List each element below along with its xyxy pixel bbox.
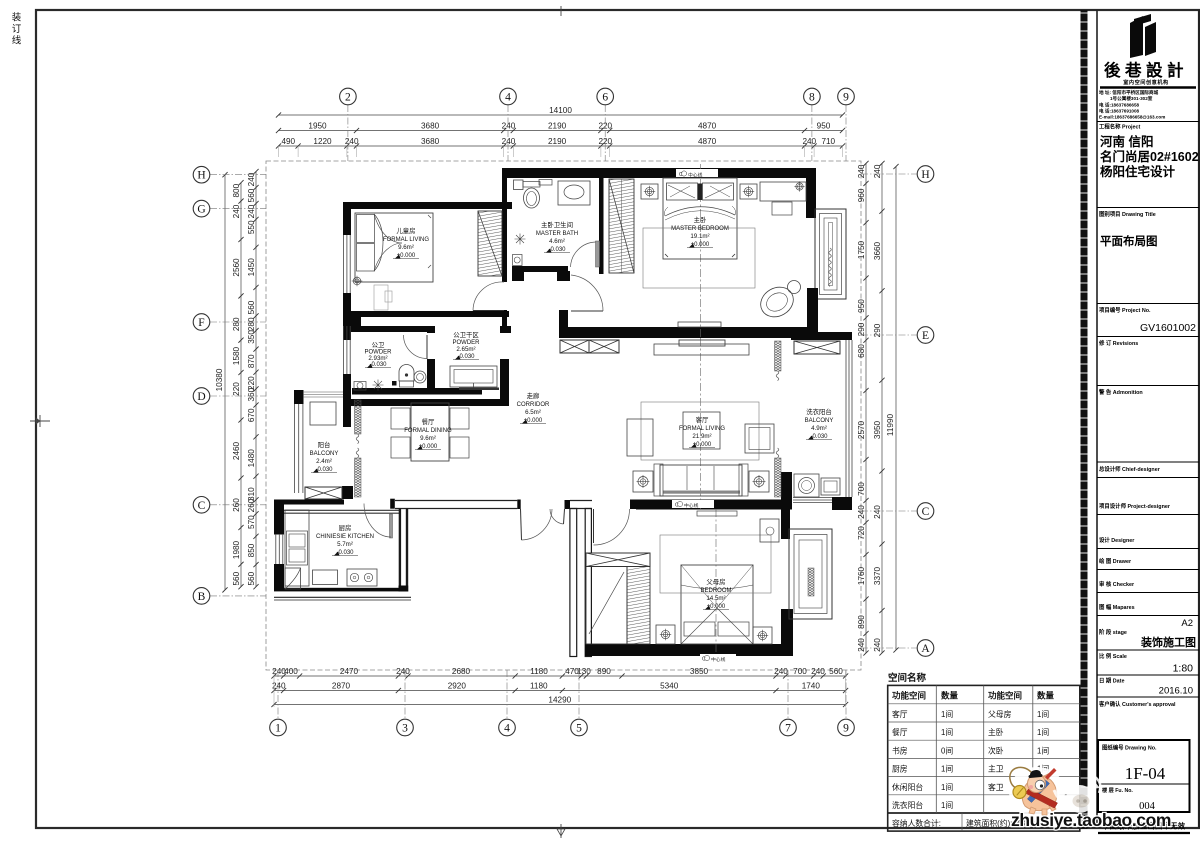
svg-text:阶 段 stage: 阶 段 stage (1099, 628, 1127, 636)
svg-text:2016.10: 2016.10 (1159, 686, 1193, 697)
svg-text:1间: 1间 (941, 801, 953, 810)
svg-text:2680: 2680 (452, 667, 471, 676)
svg-text:960: 960 (857, 188, 866, 202)
svg-text:G: G (197, 204, 205, 216)
svg-text:公卫干区: 公卫干区 (453, 331, 479, 339)
svg-text:书房: 书房 (892, 745, 908, 755)
svg-text:950: 950 (817, 122, 831, 131)
svg-text:220: 220 (598, 122, 612, 131)
svg-text:A2: A2 (1181, 618, 1193, 629)
svg-text:19.1m²: 19.1m² (690, 233, 709, 240)
svg-text:MASTER BATH: MASTER BATH (536, 231, 578, 237)
svg-text:6: 6 (602, 92, 608, 104)
svg-text:1740: 1740 (802, 682, 821, 691)
svg-text:2570: 2570 (857, 420, 866, 439)
svg-text:490: 490 (281, 137, 295, 146)
svg-text:3950: 3950 (873, 420, 882, 439)
svg-text:项目编号 Project No.: 项目编号 Project No. (1099, 306, 1151, 314)
svg-text:项目设计师 Project-designer: 项目设计师 Project-designer (1099, 502, 1171, 510)
svg-text:次卧: 次卧 (988, 745, 1004, 755)
svg-text:4870: 4870 (698, 137, 717, 146)
svg-text:2.65m²: 2.65m² (456, 346, 475, 353)
svg-text:240: 240 (247, 204, 256, 218)
svg-text:700: 700 (857, 482, 866, 496)
svg-text:日 期 Date: 日 期 Date (1099, 677, 1124, 685)
svg-text:1:80: 1:80 (1173, 663, 1194, 675)
svg-text:14100: 14100 (549, 106, 572, 115)
svg-text:後巷設計: 後巷設計 (1104, 60, 1188, 80)
svg-text:850: 850 (247, 543, 256, 557)
svg-text:B: B (198, 591, 206, 603)
svg-text:室内空间创意机构: 室内空间创意机构 (1123, 78, 1169, 86)
svg-text:2190: 2190 (548, 122, 567, 131)
svg-text:A: A (921, 643, 930, 655)
svg-text:9: 9 (843, 723, 849, 735)
svg-text:CHINIESIE KITCHEN: CHINIESIE KITCHEN (316, 534, 374, 540)
svg-text:680: 680 (857, 344, 866, 358)
svg-text:电 话:18637691008: 电 话:18637691008 (1099, 108, 1140, 115)
svg-text:客厅: 客厅 (696, 415, 709, 424)
svg-text:800: 800 (232, 183, 241, 197)
svg-text:设计 Designer: 设计 Designer (1099, 536, 1135, 544)
svg-text:图别项目 Drawing Title: 图别项目 Drawing Title (1099, 210, 1156, 218)
svg-text:560: 560 (829, 667, 843, 676)
svg-text:餐厅: 餐厅 (892, 728, 908, 737)
svg-text:修 订 Revisions: 修 订 Revisions (1098, 339, 1138, 347)
svg-text:平面布局图: 平面布局图 (1100, 234, 1158, 248)
svg-text:走廊: 走廊 (527, 391, 540, 400)
svg-text:图纸编号 Drawing No.: 图纸编号 Drawing No. (1102, 744, 1157, 752)
svg-text:240: 240 (802, 137, 816, 146)
svg-text:240: 240 (873, 638, 882, 652)
svg-text:1间: 1间 (1037, 710, 1049, 719)
svg-text:1F-04: 1F-04 (1125, 764, 1166, 783)
svg-text:D: D (197, 391, 205, 403)
svg-text:720: 720 (857, 526, 866, 540)
svg-text:GV1601002: GV1601002 (1140, 322, 1196, 334)
svg-text:儿童房: 儿童房 (396, 226, 415, 235)
svg-text:14.5m²: 14.5m² (706, 595, 725, 602)
svg-text:中心线: 中心线 (684, 502, 699, 509)
svg-text:710: 710 (821, 137, 835, 146)
svg-text:11990: 11990 (886, 413, 895, 436)
svg-text:1180: 1180 (530, 667, 548, 676)
svg-text:容纳人数合计:: 容纳人数合计: (892, 818, 941, 828)
svg-text:950: 950 (857, 299, 866, 313)
svg-text:1980: 1980 (232, 540, 241, 559)
svg-text:工程名称 Project: 工程名称 Project (1099, 123, 1141, 131)
svg-text:2470: 2470 (340, 667, 359, 676)
svg-text:客卫: 客卫 (988, 782, 1004, 792)
svg-text:240: 240 (857, 164, 866, 178)
svg-text:1间: 1间 (941, 710, 953, 719)
svg-text:240: 240 (857, 638, 866, 652)
svg-text:560: 560 (247, 571, 256, 585)
svg-text:570: 570 (247, 515, 256, 529)
svg-text:240: 240 (873, 164, 882, 178)
svg-text:中心线: 中心线 (688, 172, 703, 179)
svg-text:C: C (198, 500, 206, 512)
svg-text:5.7m²: 5.7m² (337, 541, 353, 548)
svg-text:3: 3 (402, 723, 408, 735)
svg-text:1号公寓楼301-302室: 1号公寓楼301-302室 (1110, 95, 1153, 102)
svg-text:9.6m²: 9.6m² (420, 435, 436, 442)
svg-text:功能空间: 功能空间 (892, 691, 926, 701)
svg-text:地 址: 信阳市平桥区国际商城: 地 址: 信阳市平桥区国际商城 (1099, 89, 1159, 96)
svg-text:6.5m²: 6.5m² (525, 409, 541, 416)
svg-text:240: 240 (873, 505, 882, 519)
svg-text:客厅: 客厅 (892, 709, 908, 719)
svg-text:数量: 数量 (1037, 691, 1055, 701)
svg-text:240: 240 (502, 122, 516, 131)
svg-text:220: 220 (232, 382, 241, 396)
svg-text:560: 560 (247, 188, 256, 202)
svg-text:2460: 2460 (232, 441, 241, 460)
svg-text:主卧: 主卧 (694, 215, 707, 224)
svg-text:9: 9 (843, 92, 849, 104)
svg-text:F: F (198, 317, 204, 329)
svg-text:360: 360 (247, 387, 256, 401)
svg-text:空间名称: 空间名称 (888, 672, 927, 684)
svg-text:4.9m²: 4.9m² (811, 425, 827, 432)
svg-text:1760: 1760 (857, 566, 866, 585)
svg-text:C: C (675, 503, 679, 509)
svg-text:9.6m²: 9.6m² (398, 244, 414, 251)
svg-text:主卫: 主卫 (988, 764, 1004, 774)
svg-text:河南 信阳: 河南 信阳 (1100, 134, 1153, 149)
svg-text:4: 4 (505, 92, 511, 104)
svg-text:890: 890 (597, 667, 611, 676)
svg-text:240: 240 (502, 137, 516, 146)
svg-text:楼 层 Fu. No.: 楼 层 Fu. No. (1102, 786, 1133, 794)
svg-text:3660: 3660 (873, 241, 882, 260)
svg-text:560: 560 (232, 571, 241, 585)
svg-text:2.93m²: 2.93m² (368, 355, 387, 362)
svg-text:5340: 5340 (660, 682, 679, 691)
svg-text:240: 240 (247, 172, 256, 186)
svg-text:中心线: 中心线 (711, 656, 726, 663)
svg-text:8: 8 (809, 92, 815, 104)
svg-text:FORMAL DINING: FORMAL DINING (404, 428, 452, 434)
svg-text:阳台: 阳台 (318, 440, 331, 449)
svg-text:绘 图 Drawer: 绘 图 Drawer (1099, 557, 1132, 565)
svg-text:zhusiye.taobao.com: zhusiye.taobao.com (1011, 810, 1171, 830)
svg-text:1间: 1间 (1037, 728, 1049, 737)
svg-text:240: 240 (774, 667, 788, 676)
svg-text:名门尚居02#1602: 名门尚居02#1602 (1100, 149, 1199, 164)
svg-text:400: 400 (284, 667, 298, 676)
svg-text:装订线: 装订线 (10, 11, 22, 46)
svg-text:2.4m²: 2.4m² (316, 458, 332, 465)
svg-text:21.9m²: 21.9m² (692, 433, 711, 440)
svg-text:700: 700 (793, 667, 807, 676)
svg-text:H: H (197, 170, 205, 182)
svg-text:240: 240 (345, 137, 359, 146)
svg-text:E-mail:18637686658@163.com: E-mail:18637686658@163.com (1099, 115, 1165, 120)
svg-text:5: 5 (576, 723, 582, 735)
svg-text:4870: 4870 (698, 122, 717, 131)
svg-text:图 幅 Mapares: 图 幅 Mapares (1099, 603, 1135, 611)
svg-text:280: 280 (232, 317, 241, 331)
svg-text:14290: 14290 (548, 696, 571, 705)
svg-text:数量: 数量 (941, 691, 959, 701)
svg-text:洗衣阳台: 洗衣阳台 (806, 407, 832, 416)
svg-text:功能空间: 功能空间 (988, 691, 1022, 701)
svg-text:BEDROOM: BEDROOM (700, 588, 731, 594)
svg-text:2: 2 (345, 92, 351, 104)
svg-text:1950: 1950 (308, 122, 327, 131)
svg-text:7: 7 (785, 723, 791, 735)
svg-text:BALCONY: BALCONY (805, 418, 834, 424)
svg-text:FORMAL LIVING: FORMAL LIVING (679, 426, 725, 432)
svg-text:餐厅: 餐厅 (422, 417, 435, 426)
svg-text:1间: 1间 (1037, 746, 1049, 755)
svg-text:比 例 Scale: 比 例 Scale (1099, 652, 1127, 660)
svg-text:审 核 Checker: 审 核 Checker (1099, 580, 1135, 588)
svg-text:2870: 2870 (332, 682, 351, 691)
svg-text:1间: 1间 (941, 765, 953, 774)
svg-text:客户确认 Customer's approval: 客户确认 Customer's approval (1099, 700, 1176, 708)
svg-text:670: 670 (247, 408, 256, 422)
svg-text:C: C (702, 657, 706, 663)
svg-text:1: 1 (275, 723, 281, 735)
svg-text:FORMAL LIVING: FORMAL LIVING (383, 237, 429, 243)
svg-text:1480: 1480 (247, 449, 256, 468)
svg-text:240: 240 (811, 667, 825, 676)
svg-text:260: 260 (247, 498, 256, 512)
svg-text:0间: 0间 (941, 746, 953, 755)
svg-text:220: 220 (598, 137, 612, 146)
svg-text:1450: 1450 (247, 258, 256, 277)
svg-text:10380: 10380 (215, 368, 224, 391)
svg-text:MASTER BEDROOM: MASTER BEDROOM (671, 226, 729, 232)
svg-text:2560: 2560 (232, 258, 241, 277)
svg-text:3370: 3370 (873, 566, 882, 585)
svg-text:870: 870 (247, 354, 256, 368)
svg-text:H: H (921, 169, 929, 181)
svg-text:240: 240 (857, 505, 866, 519)
svg-text:240: 240 (232, 204, 241, 218)
svg-text:560: 560 (247, 300, 256, 314)
svg-text:杨阳住宅设计: 杨阳住宅设计 (1100, 164, 1176, 179)
svg-text:总设计师 Chief-designer: 总设计师 Chief-designer (1099, 465, 1161, 473)
svg-text:休闲阳台: 休闲阳台 (892, 782, 923, 792)
svg-text:1间: 1间 (941, 783, 953, 792)
svg-text:BALCONY: BALCONY (310, 451, 339, 457)
svg-text:3680: 3680 (421, 122, 440, 131)
svg-text:890: 890 (857, 615, 866, 629)
svg-text:厨房: 厨房 (339, 523, 352, 532)
svg-text:1580: 1580 (232, 346, 241, 365)
svg-text:1220: 1220 (313, 137, 332, 146)
svg-text:E: E (922, 330, 929, 342)
svg-text:350: 350 (247, 330, 256, 344)
svg-text:2920: 2920 (448, 682, 467, 691)
svg-text:240: 240 (396, 667, 410, 676)
svg-text:4.6m²: 4.6m² (549, 238, 565, 245)
svg-text:C: C (679, 172, 683, 178)
svg-text:电 话:18637686658: 电 话:18637686658 (1099, 102, 1140, 109)
svg-text:装饰施工图: 装饰施工图 (1140, 635, 1196, 649)
svg-text:父母房: 父母房 (988, 709, 1012, 719)
svg-text:3680: 3680 (421, 137, 440, 146)
svg-text:厨房: 厨房 (892, 764, 908, 774)
svg-text:主卧卫生间: 主卧卫生间 (541, 220, 573, 229)
svg-text:4: 4 (504, 723, 510, 735)
svg-text:280: 280 (247, 317, 256, 331)
svg-text:父母房: 父母房 (706, 577, 725, 586)
svg-text:洗衣阳台: 洗衣阳台 (892, 800, 923, 810)
svg-text:1180: 1180 (530, 682, 548, 691)
svg-text:1间: 1间 (941, 728, 953, 737)
svg-text:公卫: 公卫 (372, 341, 385, 349)
svg-text:3850: 3850 (690, 667, 709, 676)
svg-text:290: 290 (857, 322, 866, 336)
svg-text:警 告 Admonition: 警 告 Admonition (1098, 388, 1143, 396)
svg-text:C: C (922, 506, 930, 518)
svg-text:主卧: 主卧 (988, 727, 1004, 737)
svg-text:1750: 1750 (857, 240, 866, 259)
svg-text:CORRIDOR: CORRIDOR (517, 402, 550, 408)
svg-text:220: 220 (247, 376, 256, 390)
svg-text:2190: 2190 (548, 137, 567, 146)
svg-text:550: 550 (247, 220, 256, 234)
